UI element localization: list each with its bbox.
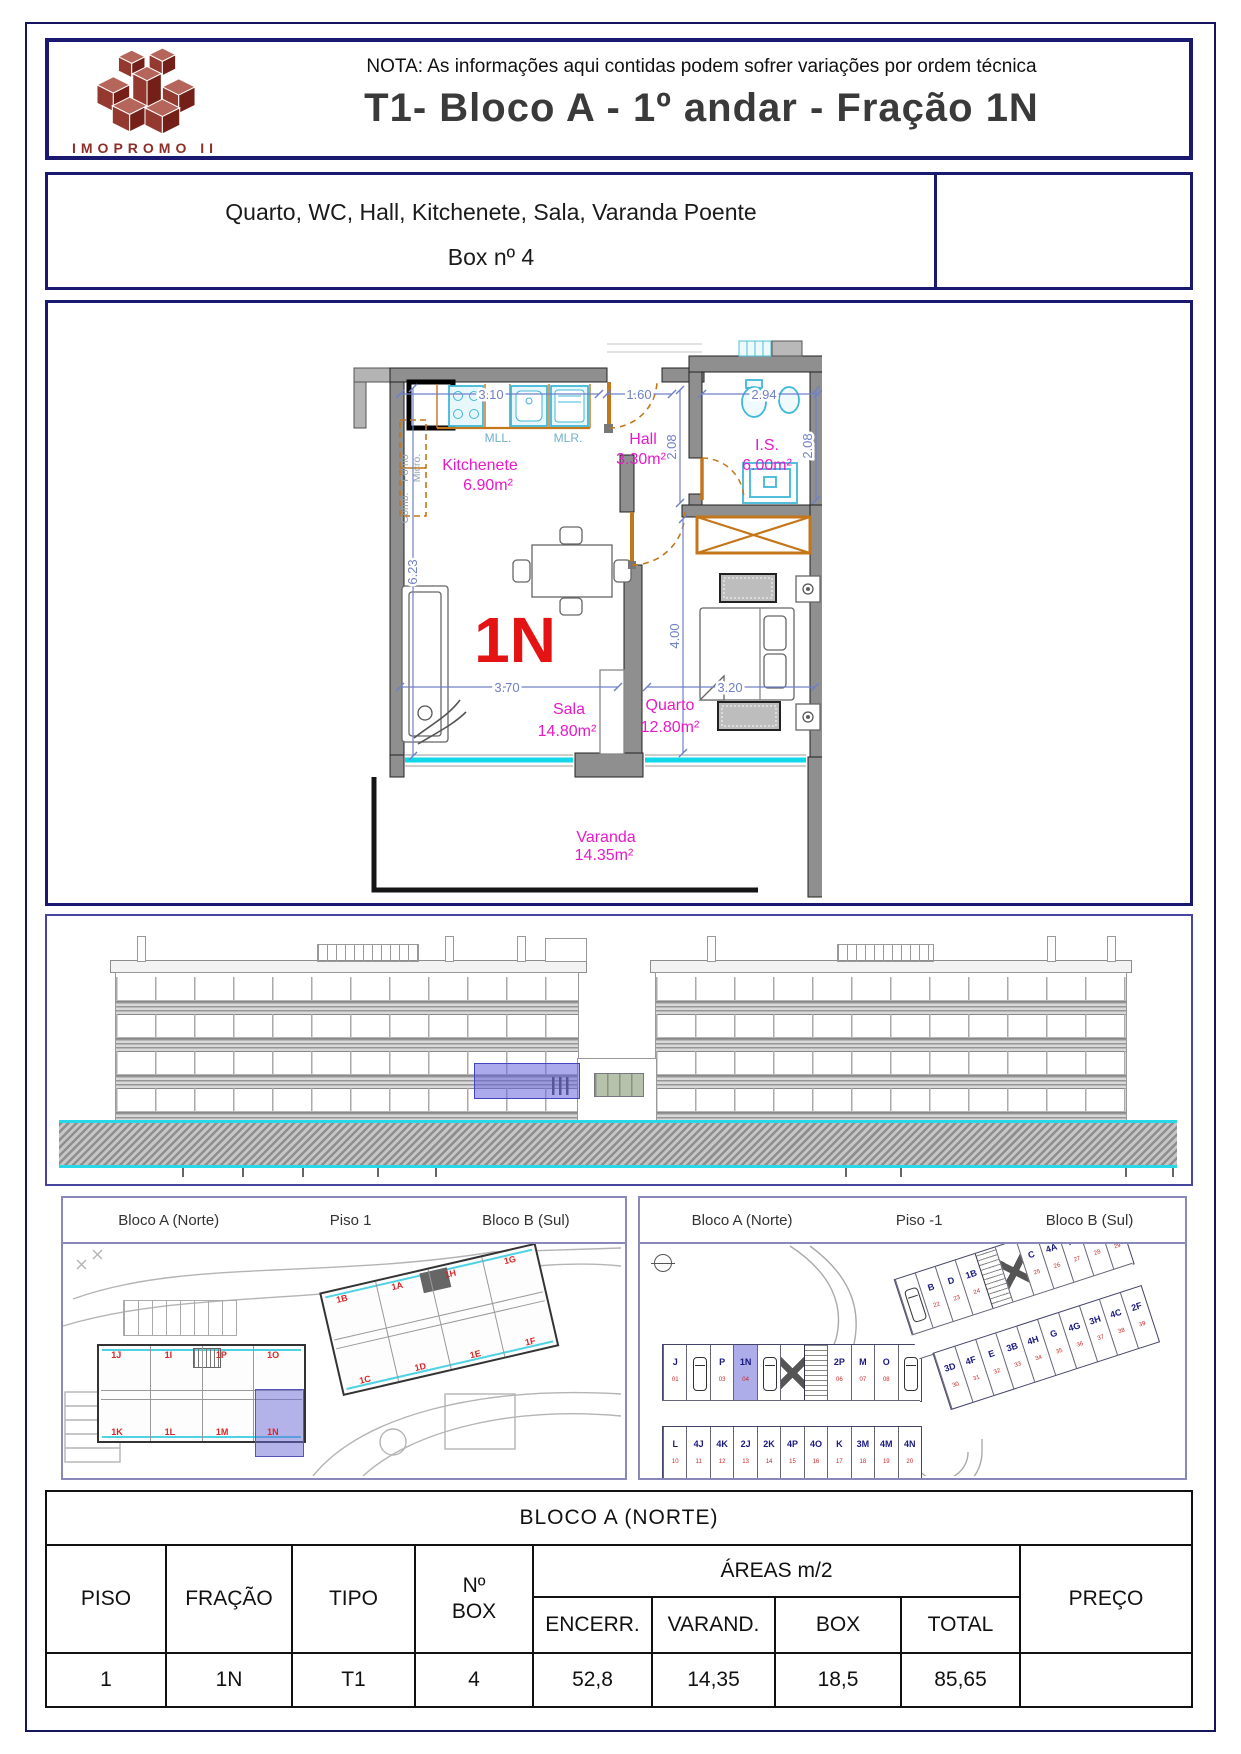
garage-box-letter: 3D (938, 1359, 961, 1375)
parking-stalls (123, 1300, 237, 1336)
bloco-a-footprint: 1J 1I 1P 1O 1K 1L 1M 1N (97, 1344, 306, 1443)
room-sala-name: Sala (553, 701, 585, 718)
garage-box-number: 26 (1047, 1260, 1068, 1272)
col-nbox-line2: BOX (417, 1599, 531, 1625)
dim-kitchen-width: 3.10 (478, 387, 503, 402)
garage-box-number: 07 (852, 1377, 874, 1383)
summary-box: Quarto, WC, Hall, Kitchenete, Sala, Vara… (45, 172, 1193, 290)
room-quarto-area: 12.80m² (641, 719, 700, 736)
garage-a-top-row: J 01 02 P 03 1N 04 4I 05 (662, 1344, 922, 1402)
garage-box-number: 03 (711, 1377, 733, 1383)
unit-label: 1N (267, 1427, 279, 1437)
cell-piso: 1 (46, 1653, 166, 1707)
dim-hall-height: 2.08 (664, 434, 679, 459)
room-is-area: 6.00m² (742, 457, 792, 474)
garage-box-letter: 3M (852, 1439, 874, 1449)
col-box: BOX (775, 1597, 901, 1653)
col-tipo: TIPO (292, 1545, 415, 1653)
areas-table: BLOCO A (NORTE) PISO FRAÇÃO TIPO Nº BOX … (45, 1490, 1193, 1708)
label-micro: Micro. (411, 454, 423, 483)
left-building-elevation (115, 972, 579, 1122)
garage-box: 4I 05 (757, 1345, 780, 1401)
garage-box: K 17 (827, 1427, 850, 1478)
garage-box-number: 34 (1028, 1352, 1050, 1364)
car-icon (693, 1357, 707, 1391)
room-hall-area: 3.30m² (616, 451, 666, 468)
garage-box-number: 23 (946, 1292, 967, 1304)
roof-stub (1047, 936, 1056, 962)
furniture (402, 527, 820, 754)
garage-box-number: 06 (828, 1377, 850, 1383)
garage-box-number: 01 (664, 1377, 686, 1383)
garage-box-letter: A (1060, 1244, 1082, 1249)
garage-box: 2K 14 (757, 1427, 780, 1478)
garage-box-letter: 4H (1021, 1332, 1044, 1348)
label-comb: Comb. (399, 493, 411, 524)
unit-label: 1M (216, 1427, 229, 1437)
pisom1-bloco-b-label: Bloco B (Sul) (1046, 1212, 1134, 1229)
garage-box-letter: 4K (711, 1439, 733, 1449)
garage-box-number (1007, 1273, 1026, 1279)
garage-box-letter: M (852, 1357, 874, 1367)
dim-sala-width: 3.70 (494, 680, 519, 695)
rooms-list-text: Quarto, WC, Hall, Kitchenete, Sala, Vara… (48, 199, 934, 226)
garage-a-bottom-row: L 10 4J 11 4K 12 2J 13 2K 14 (662, 1426, 922, 1478)
cell-fracao: 1N (166, 1653, 292, 1707)
garage-box-letter: P (711, 1357, 733, 1367)
garage-box-letter: D (940, 1273, 962, 1289)
cell-box: 18,5 (775, 1653, 901, 1707)
unit-label: 1K (111, 1427, 123, 1437)
dim-hall-width: 1.60 (626, 387, 651, 402)
floorplan-drawing: 3.10 1.60 2.94 6.23 2.08 2.08 4.00 3.70 … (340, 321, 822, 907)
garage-box-letter: J (664, 1357, 686, 1367)
piso1-bloco-b-label: Bloco B (Sul) (482, 1212, 570, 1229)
col-fracao: FRAÇÃO (166, 1545, 292, 1653)
garage-box-number (986, 1279, 1005, 1285)
unit-label: 1P (216, 1350, 227, 1360)
roof-railing (317, 944, 419, 962)
col-nbox-line1: Nº (417, 1573, 531, 1599)
unit-label: 1G (503, 1254, 517, 1266)
garage-box-number: 17 (828, 1459, 850, 1465)
garage-box: 2P 06 (827, 1345, 850, 1401)
brochure-page: { "header": { "note": "NOTA: As informaç… (0, 0, 1241, 1754)
garage-box-letter: 4A (1040, 1244, 1062, 1256)
room-quarto-name: Quarto (646, 697, 695, 714)
label-forno: Forno (399, 454, 411, 482)
unit-label: 1O (267, 1350, 279, 1360)
highlighted-unit-1n-footprint (255, 1389, 304, 1458)
garage-box-number: 37 (1090, 1332, 1112, 1344)
floorplan-panel: 3.10 1.60 2.94 6.23 2.08 2.08 4.00 3.70 … (45, 300, 1193, 906)
right-building-elevation (655, 972, 1127, 1122)
unit-label: 1I (165, 1350, 173, 1360)
garage-box-number: 31 (966, 1372, 988, 1384)
garage-box-letter: 3B (1001, 1339, 1024, 1355)
room-varanda-area: 14.35m² (575, 847, 634, 864)
garage-box-letter: 1B (960, 1266, 982, 1282)
garage-box-letter: G (1042, 1325, 1065, 1341)
garage-box: J 01 (663, 1345, 686, 1401)
garage-box-number: 12 (711, 1459, 733, 1465)
roof-stub (445, 936, 454, 962)
garage-box-number: 15 (781, 1459, 803, 1465)
garage-box: 4J 11 (686, 1427, 709, 1478)
garage-box-letter: 4N (899, 1439, 921, 1449)
garage-box-number: 39 (1131, 1318, 1153, 1330)
room-varanda-name: Varanda (576, 829, 635, 846)
highlighted-unit-elevation (474, 1063, 580, 1099)
unit-label: 1H (444, 1268, 457, 1280)
wardrobe (697, 517, 810, 553)
garage-box-number: 36 (1069, 1338, 1091, 1350)
col-total: TOTAL (901, 1597, 1020, 1653)
garage-box-number: 28 (1087, 1247, 1108, 1259)
roof-ducts (607, 341, 802, 356)
garage-box-letter: 2J (734, 1439, 756, 1449)
technical-note: NOTA: As informações aqui contidas podem… (234, 56, 1169, 78)
roof-railing (837, 944, 934, 962)
header: IMOPROMO II NOTA: As informações aqui co… (45, 38, 1193, 160)
unit-label: 1L (165, 1427, 176, 1437)
col-areas: ÁREAS m/2 (533, 1545, 1020, 1597)
garage-box-number: 13 (734, 1459, 756, 1465)
piso1-bloco-a-label: Bloco A (Norte) (118, 1212, 219, 1229)
cell-encerr: 52,8 (533, 1653, 652, 1707)
car-icon (763, 1357, 777, 1391)
room-kitchenete-name: Kitchenete (442, 457, 518, 474)
garage-box-number: 22 (926, 1299, 947, 1311)
garage-box-letter: 4G (1063, 1319, 1086, 1335)
table-title: BLOCO A (NORTE) (46, 1491, 1192, 1545)
garage-box-letter: 4P (781, 1439, 803, 1449)
garage-box: L 10 (663, 1427, 686, 1478)
garage-box-letter: 2K (758, 1439, 780, 1449)
kitchen-window (409, 382, 453, 428)
stair-tower (545, 938, 587, 962)
garage-box-number: 27 (1067, 1253, 1088, 1265)
ground-hatch (59, 1120, 1177, 1168)
garage-box-number: 14 (758, 1459, 780, 1465)
summary-text-cell: Quarto, WC, Hall, Kitchenete, Sala, Vara… (48, 175, 937, 287)
col-preco: PREÇO (1020, 1545, 1192, 1653)
garage-box-number: 19 (875, 1459, 897, 1465)
garage-box-letter: 4C (1104, 1305, 1127, 1321)
room-sala-area: 14.80m² (538, 723, 597, 740)
garage-box-number: 29 (1107, 1244, 1128, 1252)
garage-box-letter: B (920, 1279, 942, 1295)
summary-empty-cell (937, 175, 1190, 287)
dim-is-width: 2.94 (751, 387, 776, 402)
garage-box-letter: 4M (875, 1439, 897, 1449)
cell-nbox: 4 (415, 1653, 533, 1707)
room-kitchenete-area: 6.90m² (463, 477, 513, 494)
cell-varand: 14,35 (652, 1653, 775, 1707)
garage-box: 4K 12 (710, 1427, 733, 1478)
garage-box: 2J 13 (733, 1427, 756, 1478)
garage-box-letter: 4O (805, 1439, 827, 1449)
garage-box-number: 32 (986, 1365, 1008, 1377)
garage-box-letter: 3H (1084, 1312, 1107, 1328)
logo-text: IMOPROMO II (61, 140, 229, 156)
label-mll: MLL. (485, 431, 512, 445)
table-row: 1 1N T1 4 52,8 14,35 18,5 85,65 (46, 1653, 1192, 1707)
col-nbox: Nº BOX (415, 1545, 533, 1653)
garage-box-number: 35 (1049, 1345, 1071, 1357)
col-varand: VARAND. (652, 1597, 775, 1653)
unit-label: 1A (390, 1280, 403, 1292)
col-piso: PISO (46, 1545, 166, 1653)
garage-box-number: 30 (945, 1379, 967, 1391)
unit-label: 1J (111, 1350, 121, 1360)
dim-left-height: 6.23 (405, 559, 420, 584)
garage-box-number: 08 (875, 1377, 897, 1383)
roof-stub (707, 936, 716, 962)
room-is-name: I.S. (755, 437, 779, 454)
garage-box-number: 20 (899, 1459, 921, 1465)
entrance-glass (594, 1073, 644, 1097)
roof-stub (137, 936, 146, 962)
logo-cubes-icon (61, 44, 229, 138)
garage-box-letter: L (664, 1439, 686, 1449)
garage-box: 4N 20 (898, 1427, 921, 1478)
unit-label-1n: 1N (474, 604, 556, 676)
garage-box-letter (980, 1260, 999, 1266)
garage-box-letter: E (980, 1346, 1003, 1362)
dim-is-height: 2.08 (800, 433, 815, 458)
car-icon (904, 1357, 918, 1391)
label-mlr: MLR. (554, 431, 583, 445)
roof-stub (1107, 936, 1116, 962)
pisom1-bloco-a-label: Bloco A (Norte) (692, 1212, 793, 1229)
cell-preco (1020, 1653, 1192, 1707)
garage-box-number: 25 (1027, 1266, 1048, 1278)
garage-box-number: 16 (805, 1459, 827, 1465)
garage-box: 02 (686, 1345, 709, 1401)
garage-box: 4M 19 (874, 1427, 897, 1478)
garage-box (804, 1345, 827, 1401)
entrance-link (577, 1058, 657, 1124)
garage-box: M 07 (851, 1345, 874, 1401)
garage-box-letter: 1N (734, 1357, 756, 1367)
garage-box: P 03 (710, 1345, 733, 1401)
garage-box-letter: O (875, 1357, 897, 1367)
garage-box-letter (1000, 1253, 1019, 1259)
garage-box-letter: 2F (1125, 1298, 1148, 1314)
cell-tipo: T1 (292, 1653, 415, 1707)
garage-box-number: 38 (1111, 1325, 1133, 1337)
garage-box: 1N 04 (733, 1345, 756, 1401)
piso1-piso-label: Piso 1 (330, 1212, 372, 1229)
siteplan-piso1-panel: Bloco A (Norte) Piso 1 Bloco B (Sul) (61, 1196, 627, 1480)
dim-quarto-height: 4.00 (667, 623, 682, 648)
unit-label: 1B (335, 1293, 348, 1305)
dim-quarto-width: 3.20 (717, 680, 742, 695)
company-logo: IMOPROMO II (61, 44, 229, 156)
garage-box-number: 04 (734, 1377, 756, 1383)
garage-box-number: 24 (966, 1286, 987, 1298)
siteplan-piso-1-panel: Bloco A (Norte) Piso -1 Bloco B (Sul) J … (638, 1196, 1187, 1480)
garage-box-letter: C (1020, 1246, 1042, 1262)
garage-box-number: 10 (664, 1459, 686, 1465)
garage-box-letter: K (828, 1439, 850, 1449)
garage-box (780, 1345, 803, 1401)
elevation-panel (45, 914, 1193, 1186)
room-hall-name: Hall (629, 431, 657, 448)
pisom1-piso-label: Piso -1 (896, 1212, 943, 1229)
garage-box: 4P 15 (780, 1427, 803, 1478)
garage-box-number: 33 (1007, 1359, 1029, 1371)
garage-box-number: 11 (687, 1459, 709, 1465)
garage-box: 4O 16 (804, 1427, 827, 1478)
col-encerr: ENCERR. (533, 1597, 652, 1653)
garage-box-letter: 4F (959, 1352, 982, 1368)
garage-box-letter: 4J (687, 1439, 709, 1449)
box-number-text: Box nº 4 (48, 244, 934, 271)
cell-total: 85,65 (901, 1653, 1020, 1707)
roof-stub (517, 936, 526, 962)
garage-box-letter: 2P (828, 1357, 850, 1367)
garage-box: 3M 18 (851, 1427, 874, 1478)
page-title: T1- Bloco A - 1º andar - Fração 1N (234, 86, 1169, 131)
garage-box-number: 18 (852, 1459, 874, 1465)
garage-a-corridor (662, 1400, 920, 1428)
garage-box: O 08 (874, 1345, 897, 1401)
